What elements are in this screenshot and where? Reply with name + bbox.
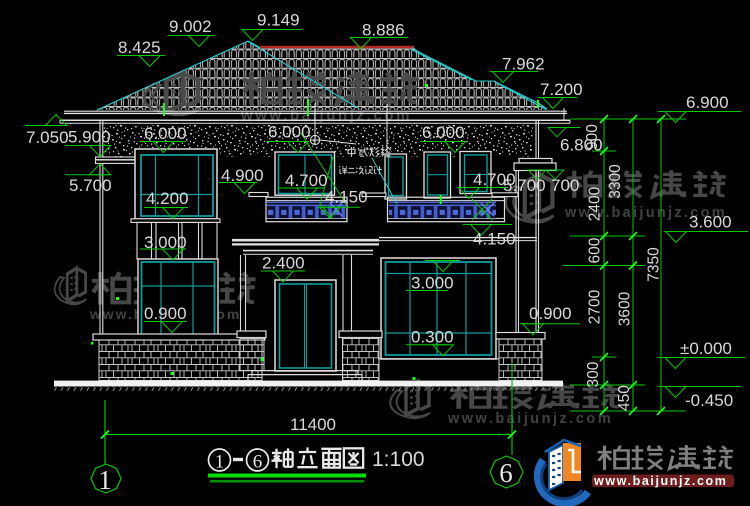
svg-text:7350: 7350 <box>646 247 663 282</box>
svg-text:www.baijunjz.com: www.baijunjz.com <box>240 107 412 124</box>
svg-text:8.886: 8.886 <box>362 21 405 40</box>
svg-text:2400: 2400 <box>587 186 604 221</box>
svg-text:www.baijunjz.com: www.baijunjz.com <box>447 411 613 427</box>
svg-text:300: 300 <box>585 361 602 387</box>
svg-text:6.000: 6.000 <box>422 123 465 142</box>
svg-text:6.000: 6.000 <box>144 124 187 143</box>
svg-text:www.baijunjz.com: www.baijunjz.com <box>593 474 727 488</box>
svg-text:2700: 2700 <box>587 289 604 324</box>
svg-text:5.700: 5.700 <box>503 176 546 195</box>
svg-text:5.900: 5.900 <box>68 128 111 147</box>
svg-text:7.200: 7.200 <box>540 80 583 99</box>
svg-text:0.900: 0.900 <box>529 304 572 323</box>
svg-text:4.150: 4.150 <box>325 188 368 207</box>
svg-text:3.600: 3.600 <box>689 213 732 232</box>
svg-text:7.050: 7.050 <box>26 128 69 147</box>
svg-text:5.700: 5.700 <box>69 176 112 195</box>
svg-text:2.400: 2.400 <box>262 254 305 273</box>
svg-text:8.425: 8.425 <box>118 38 161 57</box>
svg-text:3600: 3600 <box>617 291 634 326</box>
svg-text:4.700: 4.700 <box>285 171 328 190</box>
svg-text:9.149: 9.149 <box>257 11 300 30</box>
svg-text:11400: 11400 <box>290 415 336 434</box>
svg-text:9.002: 9.002 <box>169 17 212 36</box>
svg-text:600: 600 <box>587 237 604 263</box>
svg-text:1: 1 <box>215 452 225 473</box>
svg-text:-0.450: -0.450 <box>685 391 733 410</box>
svg-text:6: 6 <box>499 458 513 488</box>
svg-text:3.000: 3.000 <box>411 274 454 293</box>
svg-text:1: 1 <box>98 465 112 495</box>
svg-text:700: 700 <box>551 176 579 195</box>
svg-text:4.200: 4.200 <box>146 189 189 208</box>
svg-text:±0.000: ±0.000 <box>680 339 732 358</box>
svg-text:6: 6 <box>253 452 263 473</box>
svg-text:6.900: 6.900 <box>686 93 729 112</box>
svg-text:0.300: 0.300 <box>411 328 454 347</box>
svg-text:0.900: 0.900 <box>144 304 187 323</box>
svg-text:450: 450 <box>616 385 633 411</box>
svg-text:7.962: 7.962 <box>502 55 545 74</box>
svg-text:3300: 3300 <box>607 164 624 199</box>
svg-text:6.000: 6.000 <box>268 123 311 142</box>
svg-text:3.000: 3.000 <box>144 233 187 252</box>
svg-text:4.900: 4.900 <box>221 166 264 185</box>
svg-text:4.150: 4.150 <box>473 230 516 249</box>
svg-text:900: 900 <box>584 124 601 150</box>
svg-text:1:100: 1:100 <box>372 448 425 471</box>
